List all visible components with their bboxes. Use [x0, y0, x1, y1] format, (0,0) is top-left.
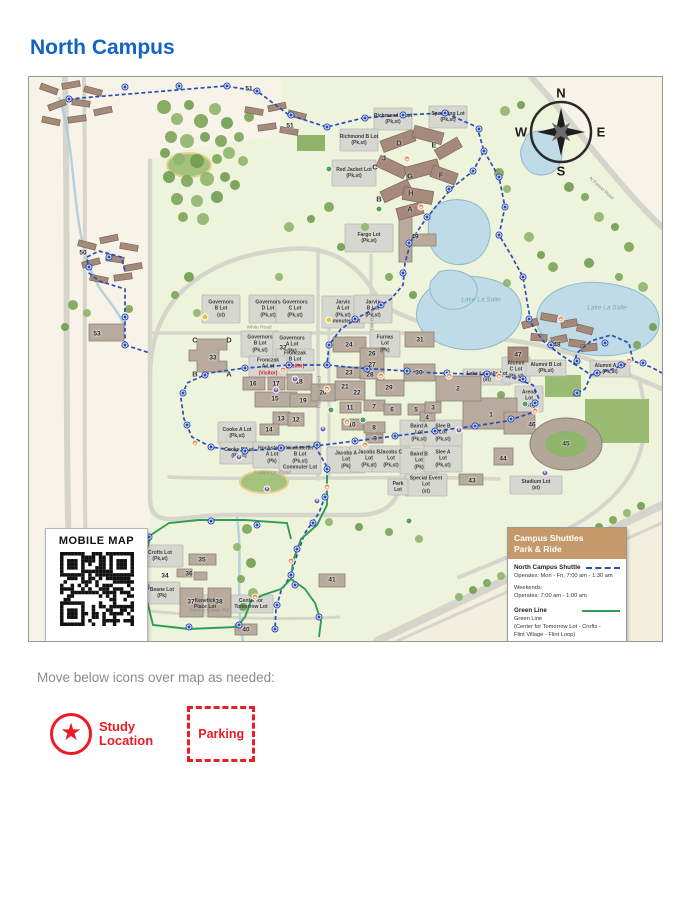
shuttle-stop-marker [522, 401, 529, 408]
num-label: 16 [249, 381, 256, 388]
compass-label: W [515, 125, 527, 140]
lot-label: Fronczak A Lot(Visitor) [257, 358, 279, 377]
shuttle-stop-marker [316, 614, 323, 621]
num-label: 41 [328, 577, 335, 584]
shuttle-stop-marker [574, 358, 581, 365]
legend-text: Green Line [514, 616, 620, 624]
instruction-text: Move below icons over map as needed: [37, 670, 275, 685]
shuttle-stop-marker [352, 316, 359, 323]
lot-label: Richmond B Lot (Pk,st) [340, 134, 379, 147]
num-label: 28 [366, 372, 373, 379]
shuttle-stop-marker [378, 302, 385, 309]
num-label: 51 [245, 86, 252, 93]
num-label: 31 [416, 337, 423, 344]
num-label: 40 [242, 627, 249, 634]
num-label: 36 [185, 571, 192, 578]
shuttle-stop-marker [326, 166, 333, 173]
ltr-label: B [376, 195, 381, 204]
num-label: 22 [353, 390, 360, 397]
num-label: 37 [187, 599, 194, 606]
lot-label: Governors B Lot (Pk,st) [247, 335, 272, 354]
shuttle-stop-marker [326, 317, 333, 324]
shuttle-stop-marker [362, 442, 369, 449]
num-label: 51 [286, 123, 293, 130]
lot-label: Baird B Lot (Pk) [410, 452, 428, 471]
green-line-sample [582, 610, 620, 612]
shuttle-stop-marker [406, 240, 413, 247]
qr-code [60, 552, 134, 626]
lot-label: Kenefick Place Lot [194, 598, 216, 611]
shuttle-stop-marker [242, 365, 249, 372]
shuttle-stop-marker [254, 88, 261, 95]
num-label: 38 [215, 599, 222, 606]
lot-label: Governors C Lot (Pk,st) [282, 300, 307, 319]
num-label: 49 [411, 234, 418, 241]
lot-label: Jacobs B Lot (Pk,st) [358, 450, 380, 469]
shuttle-stop-marker [360, 417, 367, 424]
shuttle-stop-marker [324, 386, 331, 393]
study-location-label: Study Location [99, 720, 153, 749]
page-title: North Campus [30, 36, 175, 60]
num-label: 44 [499, 456, 506, 463]
shuttle-stop-marker [192, 440, 199, 447]
num-label: 11 [347, 405, 354, 412]
num-label: 6 [390, 407, 394, 414]
shuttle-stop-marker: V [273, 387, 280, 394]
shuttle-stop-marker [66, 96, 73, 103]
legend-title-line2: Park & Ride [514, 544, 620, 555]
shuttle-stop-marker [400, 270, 407, 277]
shuttle-stop-marker [202, 314, 209, 321]
num-label: 5 [414, 407, 418, 414]
shuttle-stop-marker [472, 423, 479, 430]
legend-text: Weekends: [514, 585, 620, 593]
shuttle-stop-marker [286, 362, 293, 369]
shuttle-stop-marker [294, 546, 301, 553]
legend-green-line-label: Green Line [514, 607, 547, 614]
shuttle-stop-marker [344, 419, 351, 426]
shuttle-stop-marker [470, 168, 477, 175]
num-label: 23 [345, 370, 352, 377]
lot-label: Jacobs A Lot (Pk) [335, 451, 357, 470]
legend-text: Flint Village - Flint Loop) [514, 632, 620, 640]
num-label: 7 [372, 404, 376, 411]
shuttle-stop-marker: V [264, 486, 271, 493]
lot-label: Baird A Lot (Pk,st) [410, 424, 428, 443]
shuttle-stop-marker [208, 444, 215, 451]
shuttle-stop-marker [176, 83, 183, 90]
shuttle-stop-marker [496, 373, 503, 380]
shuttle-stop-marker [86, 264, 93, 271]
num-label: 3 [431, 405, 435, 412]
lot-label: Slee A Lot (Pk,st) [435, 450, 450, 469]
shuttle-stop-marker [122, 342, 129, 349]
ltr-label: G [407, 172, 413, 181]
shuttle-stop-marker [310, 520, 317, 527]
num-label: 29 [385, 385, 392, 392]
shuttle-stop-marker [376, 206, 383, 213]
shuttle-stop-marker [242, 448, 249, 455]
legend-text: (Center for Tomorrow Lot - Crofts - [514, 624, 620, 632]
parking-icon[interactable]: Parking [187, 706, 255, 762]
shuttle-stop-marker [406, 518, 413, 525]
shuttle-stop-marker [481, 148, 488, 155]
shuttle-stop-marker [520, 376, 527, 383]
shuttle-stop-marker [224, 83, 231, 90]
shuttle-stop-marker [404, 156, 411, 163]
num-label: 4 [425, 415, 429, 422]
road-label: Lee Road [371, 310, 376, 331]
shuttle-stop-marker: V [542, 470, 549, 477]
num-label: 33 [209, 355, 216, 362]
legend-title: Campus Shuttles Park & Ride [508, 528, 626, 559]
shuttle-stop-marker [418, 204, 425, 211]
lot-label: Beane Lot (Pk) [150, 587, 174, 600]
shuttle-stop-marker [186, 624, 193, 631]
shuttle-stop-marker [352, 438, 359, 445]
legend-north-campus-shuttle-label: North Campus Shuttle [514, 564, 580, 571]
legend-text: Operates: Mon - Fri, 7:00 am - 1:30 am [514, 573, 620, 581]
road-label: N Forest Road [588, 177, 615, 202]
lot-label: Crofts Lot (Pk,st) [148, 550, 172, 563]
num-label: 26 [368, 351, 375, 358]
num-label: 13 [277, 416, 284, 423]
lot-label: Special Event Lot (st) [410, 476, 443, 495]
shuttle-stop-marker [292, 582, 299, 589]
mobile-map-card: MOBILE MAP [45, 528, 148, 642]
shuttle-stop-marker [252, 594, 259, 601]
ltr-label: B [192, 370, 197, 379]
shuttle-stop-marker [602, 340, 609, 347]
ltr-label: A [407, 205, 412, 214]
shuttle-stop-marker [526, 316, 533, 323]
shuttle-stop-marker [202, 372, 209, 379]
road-label: Augspurger Road [253, 471, 291, 476]
shuttle-stop-marker [446, 186, 453, 193]
lot-label: Cooke A Lot (Pk,st) [222, 427, 251, 440]
num-label: 46 [528, 422, 535, 429]
num-label: 14 [265, 427, 272, 434]
shuttle-stop-marker: V [236, 454, 243, 461]
shuttle-stop-marker [180, 390, 187, 397]
shuttle-legend-card: Campus Shuttles Park & Ride North Campus… [507, 527, 627, 642]
compass-label: N [556, 86, 565, 101]
shuttle-stop-marker [378, 373, 385, 380]
mobile-map-title: MOBILE MAP [46, 535, 147, 547]
shuttle-stop-marker [442, 110, 449, 117]
shuttle-stop-marker [324, 466, 331, 473]
blue-dashed-line-sample [586, 567, 620, 569]
road-label: Hamilton Road [318, 376, 323, 408]
num-label: 53 [93, 331, 100, 338]
ltr-label: F [439, 171, 444, 180]
shuttle-stop-marker [328, 407, 335, 414]
ltr-label: E [431, 141, 436, 150]
shuttle-stop-marker [532, 400, 539, 407]
shuttle-stop-marker: V [320, 426, 327, 433]
lot-label: Governors D Lot (Pk,st) [255, 300, 280, 319]
shuttle-stop-marker [106, 254, 113, 261]
shuttle-stop-marker [364, 366, 371, 373]
lot-label: Governors B Lot (st) [208, 300, 233, 319]
shuttle-stop-marker [236, 622, 243, 629]
lot-label: Center for Tomorrow Lot [234, 598, 267, 611]
num-label: 30 [415, 370, 422, 377]
shuttle-stop-marker [288, 558, 295, 565]
shuttle-stop-marker [208, 518, 215, 525]
num-label: 21 [341, 384, 348, 391]
ltr-label: J [382, 154, 386, 163]
ltr-label: C [192, 336, 197, 345]
draggable-icons-row: ★ Study Location Parking [50, 706, 255, 762]
shuttle-stop-marker [324, 484, 331, 491]
num-label: 50 [79, 250, 86, 257]
shuttle-stop-marker [496, 174, 503, 181]
num-label: 19 [299, 398, 306, 405]
shuttle-stop-marker [274, 602, 281, 609]
shuttle-stop-marker [520, 274, 527, 281]
ltr-label: D [226, 336, 231, 345]
num-label: 12 [292, 417, 299, 424]
water-label: Lake La Salle [461, 297, 500, 304]
shuttle-stop-marker [322, 494, 329, 501]
num-label: 45 [562, 441, 569, 448]
ltr-label: A [226, 370, 231, 379]
shuttle-stop-marker [278, 445, 285, 452]
shuttle-stop-marker [400, 112, 407, 119]
legend-title-line1: Campus Shuttles [514, 533, 620, 544]
shuttle-stop-marker: V [314, 498, 321, 505]
parking-label: Parking [198, 727, 244, 741]
shuttle-stop-marker [476, 126, 483, 133]
num-label: 1 [489, 412, 493, 419]
shuttle-stop-marker [532, 408, 539, 415]
shuttle-stop-marker [392, 433, 399, 440]
shuttle-stop-marker [254, 522, 261, 529]
shuttle-stop-marker: V [456, 427, 463, 434]
shuttle-stop-marker [640, 360, 647, 367]
lot-label: Furnas Lot (Pk) [377, 335, 394, 354]
ltr-label: H [408, 189, 413, 198]
ltr-label: C [372, 163, 377, 172]
num-label: 47 [514, 352, 521, 359]
road-label: White Road [246, 326, 271, 331]
num-label: 9 [373, 436, 377, 443]
compass-label: E [597, 125, 606, 140]
shuttle-stop-marker [618, 362, 625, 369]
study-label-line2: Location [99, 734, 153, 748]
shuttle-stop-marker [508, 416, 515, 423]
star-icon: ★ [50, 713, 92, 755]
shuttle-stop-marker [626, 358, 633, 365]
shuttle-stop-marker [288, 112, 295, 119]
shuttle-stop-marker [404, 368, 411, 375]
lot-label: Park Lot [393, 481, 404, 494]
shuttle-stop-marker [324, 362, 331, 369]
lot-label: Alumni B Lot (Pk,st) [530, 362, 561, 375]
shuttle-stop-marker [324, 124, 331, 131]
shuttle-stop-marker [122, 84, 129, 91]
num-label: 43 [468, 478, 475, 485]
num-label: 8 [372, 425, 376, 432]
num-label: 15 [271, 396, 278, 403]
lot-label: Fargo Lot (Pk,st) [357, 232, 380, 245]
water-label: Lake La Salle [587, 305, 626, 312]
shuttle-stop-marker [362, 115, 369, 122]
road-label: Service Center Rd [189, 609, 228, 614]
study-location-icon[interactable]: ★ Study Location [50, 713, 153, 755]
shuttle-stop-marker [502, 204, 509, 211]
shuttle-stop-marker [484, 371, 491, 378]
num-label: 24 [345, 342, 352, 349]
shuttle-stop-marker [424, 214, 431, 221]
shuttle-stop-marker [432, 428, 439, 435]
lot-label: Jacobs C Lot (Pk,st) [380, 450, 402, 469]
shuttle-stop-marker [122, 314, 129, 321]
shuttle-stop-marker [326, 342, 333, 349]
shuttle-stop-marker [288, 572, 295, 579]
shuttle-stop-marker [594, 370, 601, 377]
shuttle-stop-marker [184, 422, 191, 429]
shuttle-stop-marker [496, 232, 503, 239]
campus-map[interactable]: 5151505349454644434748313012345678910111… [28, 76, 663, 642]
num-label: 32 [279, 345, 286, 352]
shuttle-stop-marker [548, 342, 555, 349]
shuttle-stop-marker [280, 367, 287, 374]
shuttle-stop-marker [574, 390, 581, 397]
shuttle-stop-marker [272, 626, 279, 633]
lot-label: Governors A Lot (Pk) [279, 336, 304, 355]
shuttle-stop-marker [558, 316, 565, 323]
legend-text: Operates: 7:00 am - 1:00 am [514, 593, 620, 601]
num-label: 35 [198, 557, 205, 564]
compass-label: S [557, 164, 566, 179]
lot-label: Hochstetter B Lot (Pk,st) Commuter Lot [283, 446, 317, 471]
ltr-label: D [396, 139, 401, 148]
num-label: 34 [161, 573, 168, 580]
shuttle-stop-marker: V [292, 376, 299, 383]
num-label: 2 [456, 386, 460, 393]
shuttle-stop-marker [314, 442, 321, 449]
shuttle-stop-marker [446, 373, 453, 380]
lot-label: Red Jacket Lot (Pk,st) [336, 167, 372, 180]
study-label-line1: Study [99, 720, 153, 734]
lot-label: Stadium Lot (st) [522, 479, 551, 492]
